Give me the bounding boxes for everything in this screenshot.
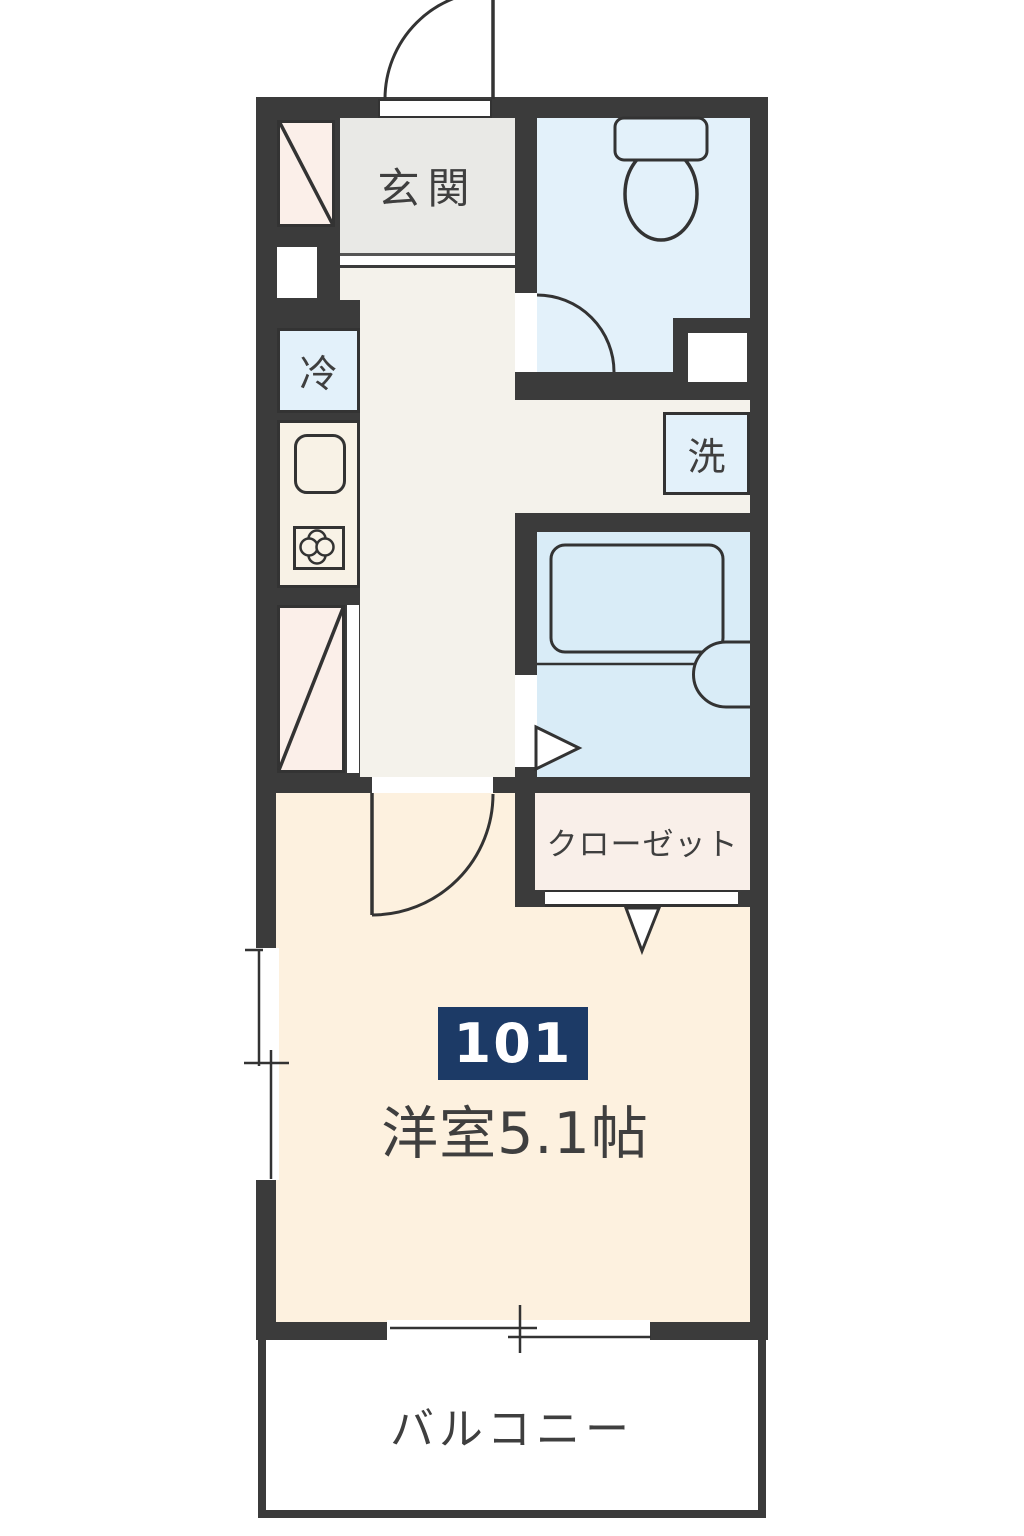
pipe-space	[688, 333, 747, 382]
entrance-step	[340, 253, 515, 268]
unit-number-badge: 101	[438, 1007, 588, 1080]
entrance-label: 玄関	[377, 155, 477, 216]
window-left	[253, 948, 279, 1180]
room-balcony: バルコニー	[258, 1340, 766, 1518]
entrance-door-arc	[385, 0, 493, 99]
main-room-label-box: 洋室5.1帖	[330, 1093, 700, 1165]
room-entrance: 玄関	[340, 118, 515, 253]
meter-box	[277, 247, 317, 298]
balcony-sliding-door	[387, 1320, 650, 1342]
storage-opening	[347, 605, 359, 773]
main-room-label: 洋室5.1帖	[381, 1088, 649, 1170]
shoe-storage	[277, 120, 335, 227]
balcony-label: バルコニー	[390, 1393, 634, 1457]
floor-plan: 玄関 冷 洗 クローゼット	[0, 0, 1024, 1536]
room-bathroom	[537, 532, 750, 777]
room-door-gap	[372, 777, 493, 793]
washer-space: 洗	[663, 412, 750, 495]
stove-icon	[293, 526, 345, 570]
washer-label: 洗	[687, 426, 725, 481]
corridor	[360, 268, 515, 777]
refrigerator-label: 冷	[299, 343, 337, 398]
refrigerator-space: 冷	[277, 328, 360, 413]
bath-door-gap	[515, 675, 537, 767]
closet-label: クローゼット	[547, 819, 739, 864]
kitchen-counter	[277, 420, 360, 588]
storage-lower	[277, 605, 345, 773]
room-closet: クローゼット	[535, 793, 750, 890]
corridor-nub	[340, 268, 362, 300]
toilet-door-gap	[515, 293, 537, 372]
unit-number: 101	[454, 1012, 573, 1075]
sink-icon	[294, 434, 346, 494]
closet-sliding-door	[545, 890, 738, 907]
entrance-door-gap	[378, 99, 492, 118]
